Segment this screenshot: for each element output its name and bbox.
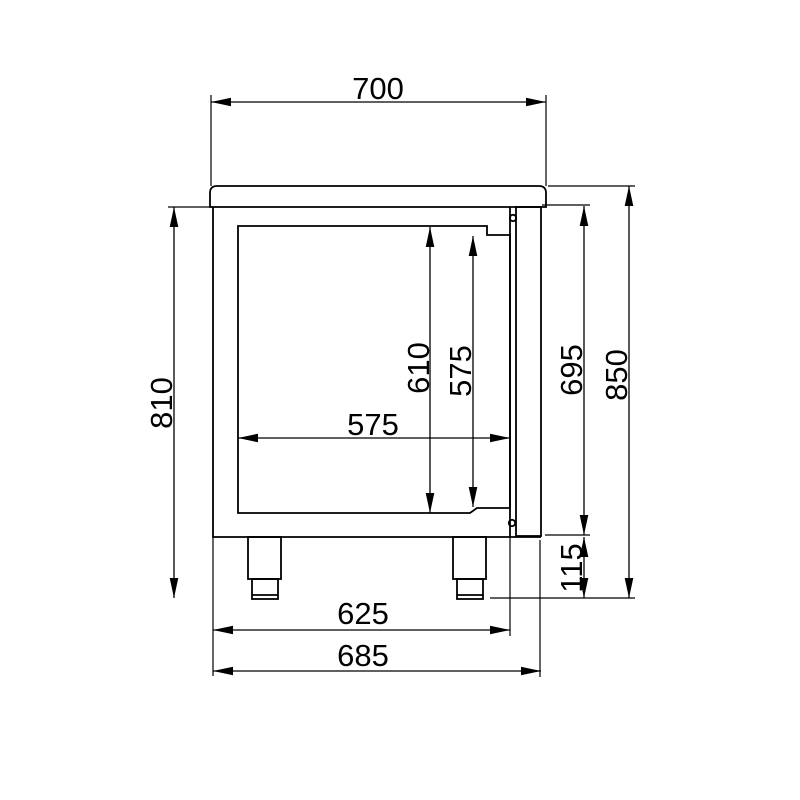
worktop [210,186,546,207]
dim-label-inner-depth: 575 [347,407,399,442]
dim-body-depth: 625 [213,596,510,634]
dim-label-overall-depth: 685 [337,638,389,673]
dim-overall-height: 850 [599,186,634,598]
dim-label-door-opening-height: 575 [443,345,478,397]
dim-label-overall-height: 850 [599,349,634,401]
door-panel [516,207,541,536]
technical-drawing-svg: 700 810 610 575 575 695 85 [0,0,800,800]
cabinet-body [213,207,541,537]
dim-label-top-width: 700 [352,71,404,106]
dim-inner-depth: 575 [238,407,510,442]
left-foot [248,537,281,599]
dim-overall-depth: 685 [213,638,541,675]
dim-label-left-height: 810 [144,377,179,429]
dim-top-width: 700 [211,71,546,106]
dim-right-body-height: 695 [554,206,589,535]
dim-label-leg-height: 115 [554,543,589,592]
dim-inner-height: 610 [401,227,436,513]
right-foot [453,537,486,599]
dim-label-inner-height: 610 [401,342,436,394]
dim-label-right-body-height: 695 [554,344,589,396]
drawing-canvas: 700 810 610 575 575 695 85 [0,0,800,800]
dim-leg-height: 115 [554,537,589,598]
dim-left-height: 810 [144,207,179,598]
dim-label-body-depth: 625 [337,596,389,631]
dim-door-opening-height: 575 [443,236,478,507]
